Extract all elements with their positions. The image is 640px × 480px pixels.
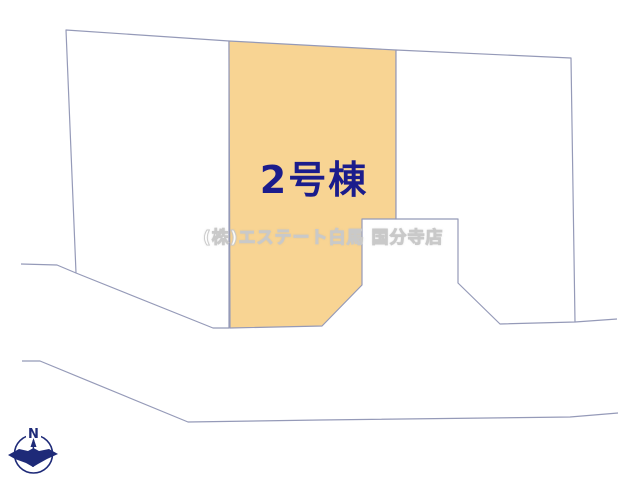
north-compass-icon: N (8, 426, 58, 473)
lot-parcel-right (396, 50, 575, 324)
north-indicator-label: N (28, 427, 39, 442)
plot-plan-page: N 2号棟 (株)エステート白馬 国分寺店 (0, 0, 640, 480)
road-edge-lower (22, 361, 618, 422)
road-edge-upper-left (21, 264, 76, 273)
lot-parcel-left (66, 30, 229, 328)
lot-2-label: 2号棟 (234, 158, 394, 202)
road-edge-upper-right (575, 319, 617, 322)
agency-watermark: (株)エステート白馬 国分寺店 (203, 229, 443, 248)
